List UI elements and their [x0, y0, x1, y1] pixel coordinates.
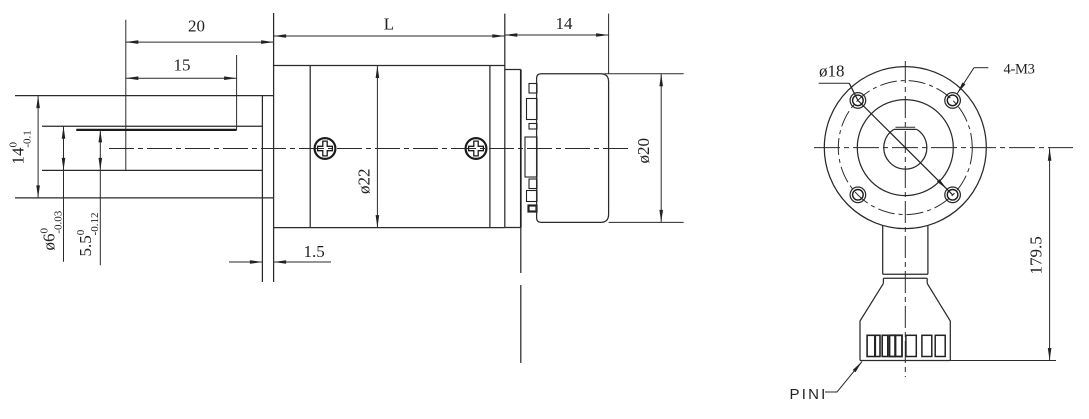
- svg-text:5.50-0.12: 5.50-0.12: [75, 212, 101, 256]
- svg-text:ø60-0.03: ø60-0.03: [39, 210, 65, 250]
- svg-text:ø22: ø22: [355, 169, 374, 195]
- svg-text:15: 15: [174, 56, 191, 75]
- svg-text:140-0.1: 140-0.1: [8, 130, 34, 164]
- svg-text:20: 20: [188, 17, 205, 36]
- svg-text:ø20: ø20: [634, 138, 653, 164]
- svg-text:4-M3: 4-M3: [1004, 62, 1035, 78]
- svg-text:L: L: [384, 15, 394, 34]
- svg-text:14: 14: [556, 14, 574, 33]
- svg-text:179.5: 179.5: [1027, 236, 1046, 274]
- svg-text:PINI: PINI: [790, 386, 828, 403]
- svg-text:1.5: 1.5: [304, 242, 325, 261]
- svg-text:ø18: ø18: [819, 62, 845, 81]
